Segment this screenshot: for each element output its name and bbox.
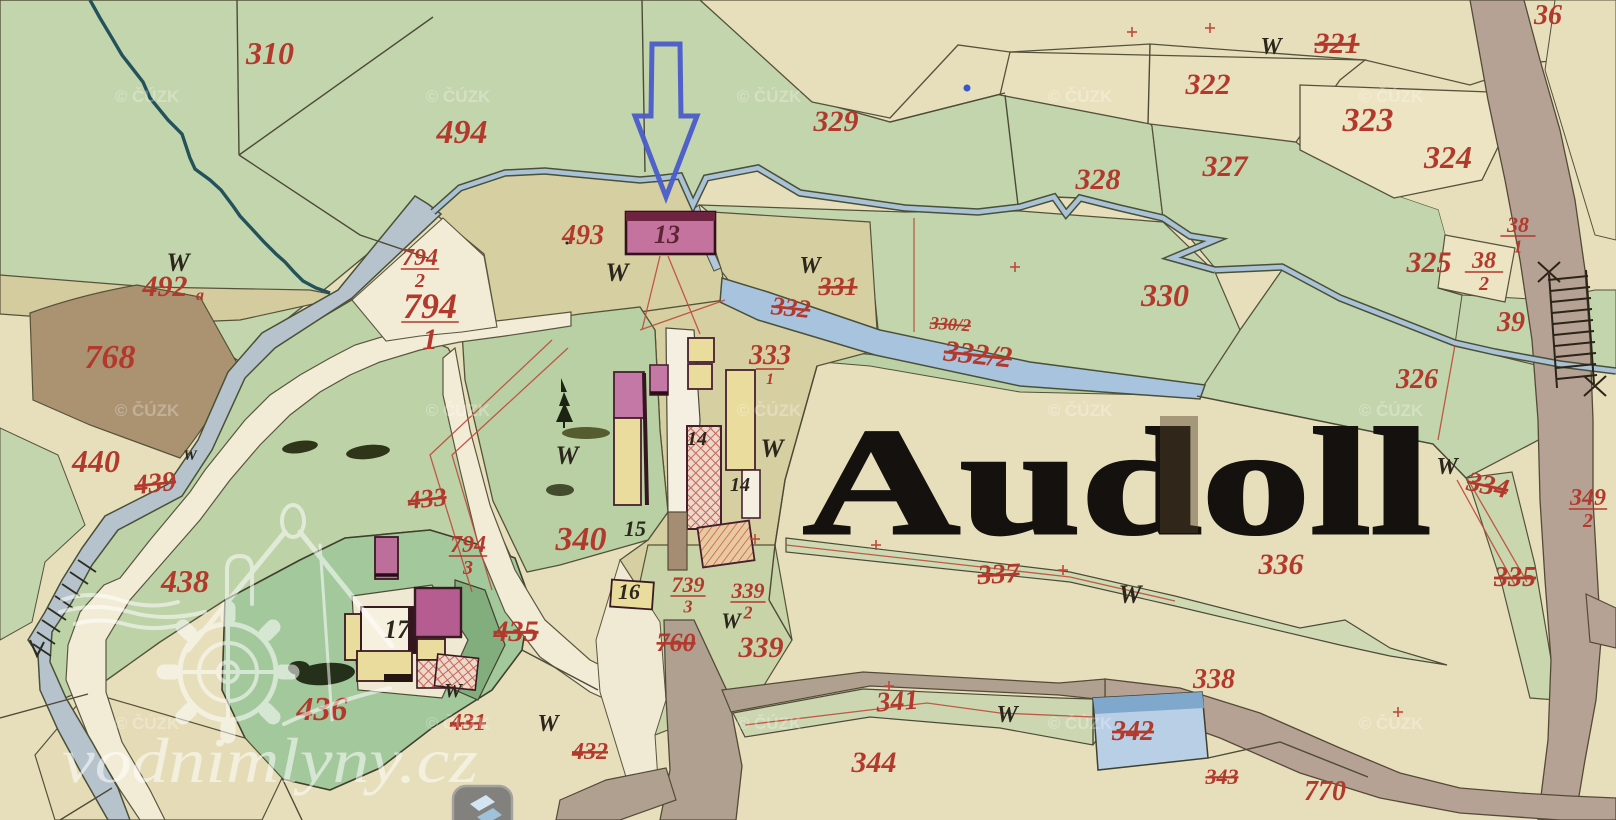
svg-text:324: 324 — [1423, 139, 1472, 175]
svg-text:© ČÚZK: © ČÚZK — [426, 87, 491, 106]
svg-text:1: 1 — [1514, 237, 1523, 257]
svg-text:794: 794 — [403, 286, 457, 326]
svg-text:W: W — [1118, 580, 1143, 609]
svg-text:a: a — [196, 287, 204, 304]
svg-text:3: 3 — [462, 557, 473, 579]
svg-text:335: 335 — [1493, 562, 1536, 593]
svg-text:W: W — [996, 702, 1019, 728]
svg-text:339: 339 — [731, 578, 765, 603]
svg-text:330/2: 330/2 — [928, 313, 971, 336]
svg-text:323: 323 — [1342, 102, 1394, 139]
svg-text:326: 326 — [1395, 364, 1438, 395]
svg-text:435: 435 — [493, 615, 539, 648]
svg-text:© ČÚZK: © ČÚZK — [1048, 714, 1113, 733]
svg-text:344: 344 — [851, 746, 897, 779]
svg-text:© ČÚZK: © ČÚZK — [115, 87, 180, 106]
svg-text:332: 332 — [769, 291, 812, 324]
svg-text:493: 493 — [561, 220, 604, 251]
svg-text:433: 433 — [405, 482, 448, 515]
svg-text:© ČÚZK: © ČÚZK — [737, 87, 802, 106]
svg-text:14: 14 — [730, 474, 750, 496]
svg-text:2: 2 — [743, 603, 753, 623]
svg-text:2: 2 — [1582, 510, 1593, 532]
svg-text:349: 349 — [1569, 485, 1606, 511]
svg-text:W: W — [1436, 454, 1459, 480]
svg-text:W: W — [537, 711, 560, 737]
svg-text:W: W — [799, 253, 822, 279]
svg-text:Audoll: Audoll — [803, 398, 1431, 566]
svg-text:339: 339 — [738, 631, 784, 664]
svg-text:© ČÚZK: © ČÚZK — [1359, 714, 1424, 733]
svg-text:W: W — [183, 448, 198, 464]
svg-text:vodnimlyny.cz: vodnimlyny.cz — [62, 725, 478, 796]
svg-text:340: 340 — [555, 521, 607, 558]
svg-text:760: 760 — [657, 628, 696, 657]
svg-text:16: 16 — [618, 579, 640, 604]
svg-text:768: 768 — [85, 339, 136, 376]
svg-text:325: 325 — [1406, 246, 1452, 279]
svg-text:333: 333 — [748, 340, 791, 371]
svg-text:© ČÚZK: © ČÚZK — [426, 401, 491, 420]
svg-text:© ČÚZK: © ČÚZK — [1359, 401, 1424, 420]
svg-text:439: 439 — [132, 466, 178, 501]
svg-text:© ČÚZK: © ČÚZK — [737, 401, 802, 420]
svg-text:440: 440 — [71, 443, 120, 479]
svg-text:W: W — [555, 441, 580, 470]
svg-text:322: 322 — [1185, 68, 1231, 101]
svg-text:321: 321 — [1314, 27, 1360, 60]
svg-text:327: 327 — [1202, 150, 1249, 183]
svg-text:338: 338 — [1192, 664, 1235, 695]
svg-text:14: 14 — [687, 428, 707, 450]
svg-text:1: 1 — [766, 371, 774, 388]
svg-text:© ČÚZK: © ČÚZK — [1359, 87, 1424, 106]
svg-text:39: 39 — [1496, 307, 1525, 338]
svg-text:© ČÚZK: © ČÚZK — [115, 401, 180, 420]
svg-text:343: 343 — [1205, 764, 1239, 789]
svg-text:494: 494 — [436, 114, 488, 151]
svg-text:36: 36 — [1533, 0, 1562, 31]
svg-text:W: W — [1260, 34, 1283, 60]
svg-text:W: W — [605, 258, 630, 287]
svg-text:© ČÚZK: © ČÚZK — [1048, 401, 1113, 420]
svg-text:341: 341 — [874, 685, 919, 719]
svg-text:794: 794 — [450, 532, 486, 558]
svg-text:W: W — [166, 248, 191, 277]
svg-text:1: 1 — [423, 323, 438, 356]
svg-text:W: W — [444, 680, 463, 702]
svg-text:W: W — [760, 434, 785, 463]
svg-text:328: 328 — [1075, 163, 1121, 196]
svg-text:432: 432 — [571, 739, 608, 765]
svg-text:W: W — [721, 608, 742, 633]
svg-text:438: 438 — [160, 563, 209, 599]
svg-text:© ČÚZK: © ČÚZK — [737, 714, 802, 733]
svg-text:38: 38 — [1506, 212, 1529, 237]
svg-text:© ČÚZK: © ČÚZK — [1048, 87, 1113, 106]
svg-text:13: 13 — [654, 220, 680, 249]
svg-text:15: 15 — [624, 516, 646, 541]
svg-text:794: 794 — [402, 245, 438, 271]
svg-text:3: 3 — [683, 597, 693, 617]
svg-text:329: 329 — [813, 105, 859, 138]
svg-text:38: 38 — [1471, 248, 1496, 274]
svg-text:2: 2 — [1478, 273, 1489, 295]
svg-text:310: 310 — [245, 35, 294, 71]
svg-text:342: 342 — [1111, 716, 1154, 747]
svg-text:330: 330 — [1140, 277, 1189, 313]
svg-text:770: 770 — [1304, 776, 1346, 807]
svg-text:739: 739 — [672, 572, 705, 597]
svg-text:331: 331 — [818, 272, 858, 301]
